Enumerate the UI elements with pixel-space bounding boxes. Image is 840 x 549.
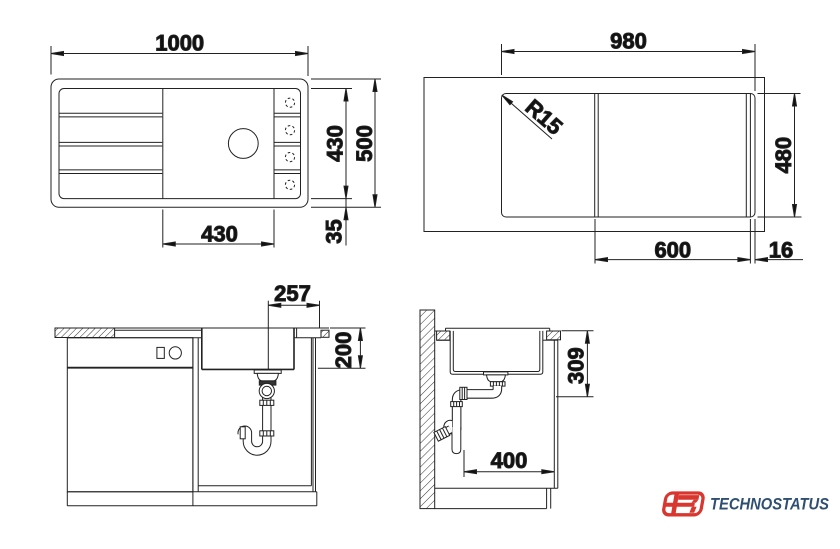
- svg-text:430: 430: [323, 125, 348, 162]
- svg-text:257: 257: [274, 281, 311, 306]
- svg-text:980: 980: [610, 29, 647, 54]
- svg-text:500: 500: [352, 125, 377, 162]
- svg-text:35: 35: [322, 219, 347, 243]
- svg-text:R15: R15: [521, 94, 568, 139]
- svg-text:200: 200: [331, 332, 356, 369]
- svg-text:16: 16: [769, 238, 793, 263]
- svg-text:1000: 1000: [155, 31, 204, 56]
- svg-text:480: 480: [771, 137, 796, 174]
- svg-text:400: 400: [491, 448, 528, 473]
- svg-text:430: 430: [201, 222, 238, 247]
- svg-text:309: 309: [564, 347, 589, 384]
- svg-text:TECHNOSTATUS: TECHNOSTATUS: [710, 495, 830, 514]
- svg-text:600: 600: [654, 238, 691, 263]
